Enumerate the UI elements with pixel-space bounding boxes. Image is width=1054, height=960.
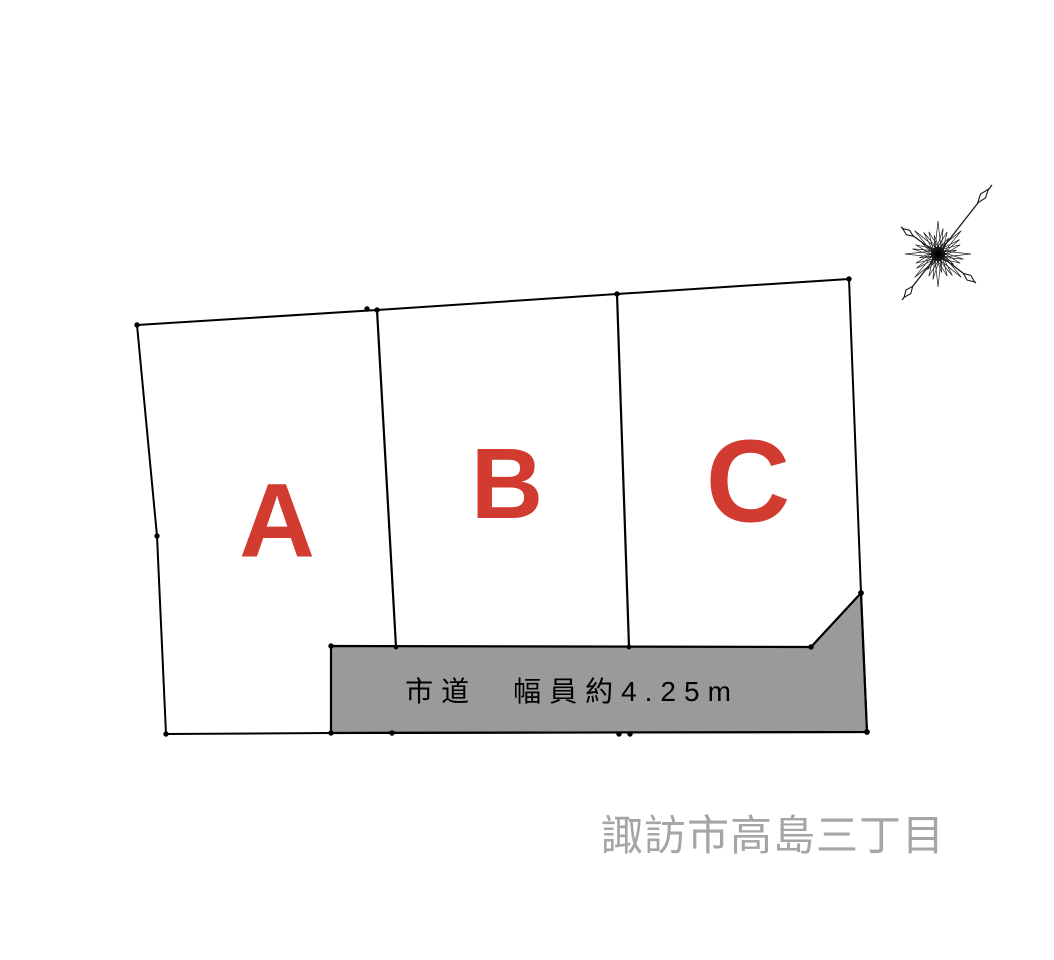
divider-b-c (617, 294, 629, 647)
compass-ne-arrowhead (978, 189, 988, 202)
compass-sw-arrowhead (904, 286, 913, 297)
compass-se-arrowhead (963, 274, 974, 282)
plot-label-c: C (706, 423, 791, 540)
location-label: 諏訪市高島三丁目 (601, 802, 945, 863)
divider-a-b (377, 310, 396, 647)
plot-label-b: B (471, 434, 543, 534)
road-label: 市道 幅員約4.25m (331, 646, 813, 733)
plot-map-canvas: A B C 市道 幅員約4.25m 諏訪市高島三丁目 (0, 0, 1054, 960)
compass-nw-arrowhead (903, 229, 914, 237)
compass-icon (901, 185, 992, 300)
plot-label-a: A (239, 469, 315, 574)
